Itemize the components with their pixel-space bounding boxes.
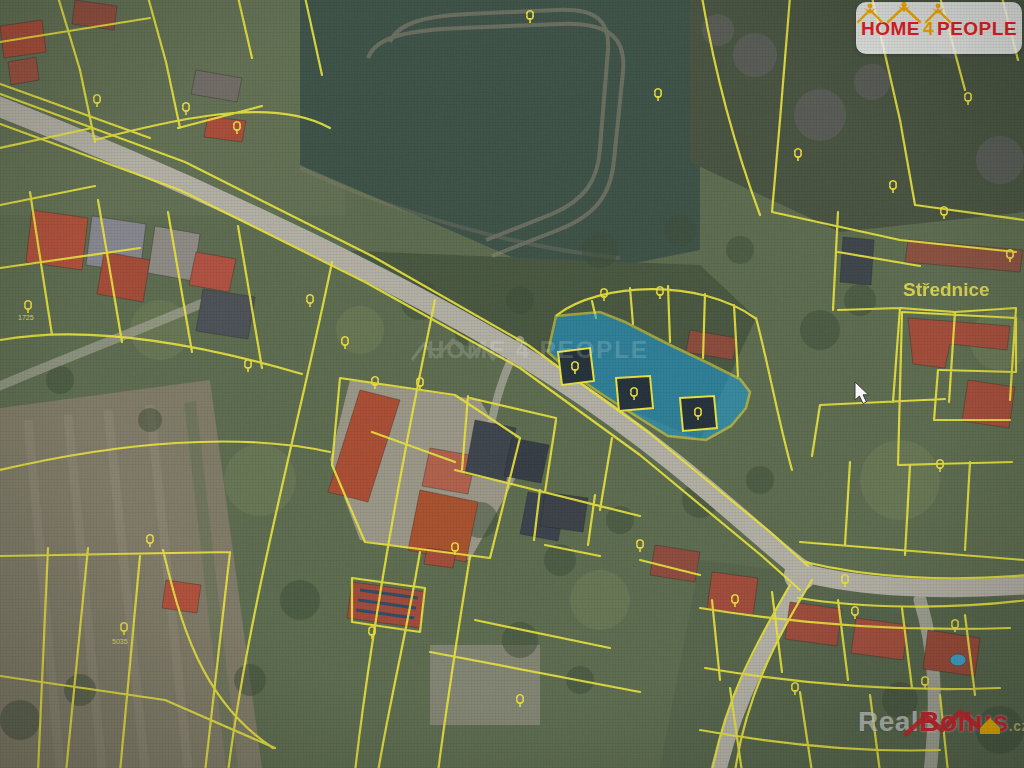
home4people-houses-icon: [856, 2, 952, 24]
map-canvas[interactable]: 1725 5035 Střednice: [0, 0, 1024, 768]
cadastral-map-screenshot: 1725 5035 Střednice HOME 4 PEOPLE: [0, 0, 1024, 768]
photo-grain: [0, 0, 1024, 768]
home4people-logo: HOME4PEOPLE: [856, 2, 1022, 54]
